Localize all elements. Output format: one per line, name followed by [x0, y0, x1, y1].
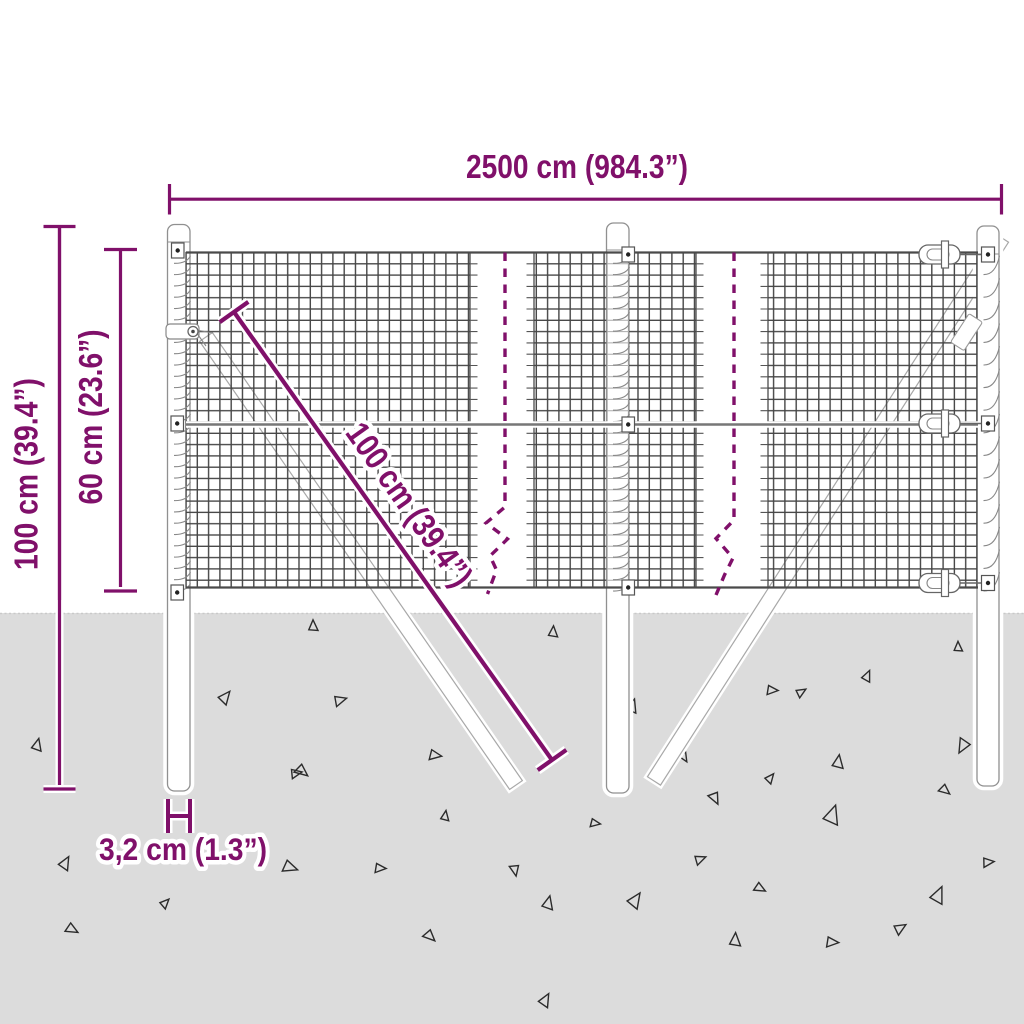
svg-text:60 cm (23.6”): 60 cm (23.6”): [73, 330, 110, 505]
svg-text:3,2 cm (1.3”): 3,2 cm (1.3”): [99, 831, 267, 867]
svg-text:100 cm (39.4”): 100 cm (39.4”): [9, 378, 46, 570]
svg-text:2500 cm (984.3”): 2500 cm (984.3”): [466, 149, 688, 186]
